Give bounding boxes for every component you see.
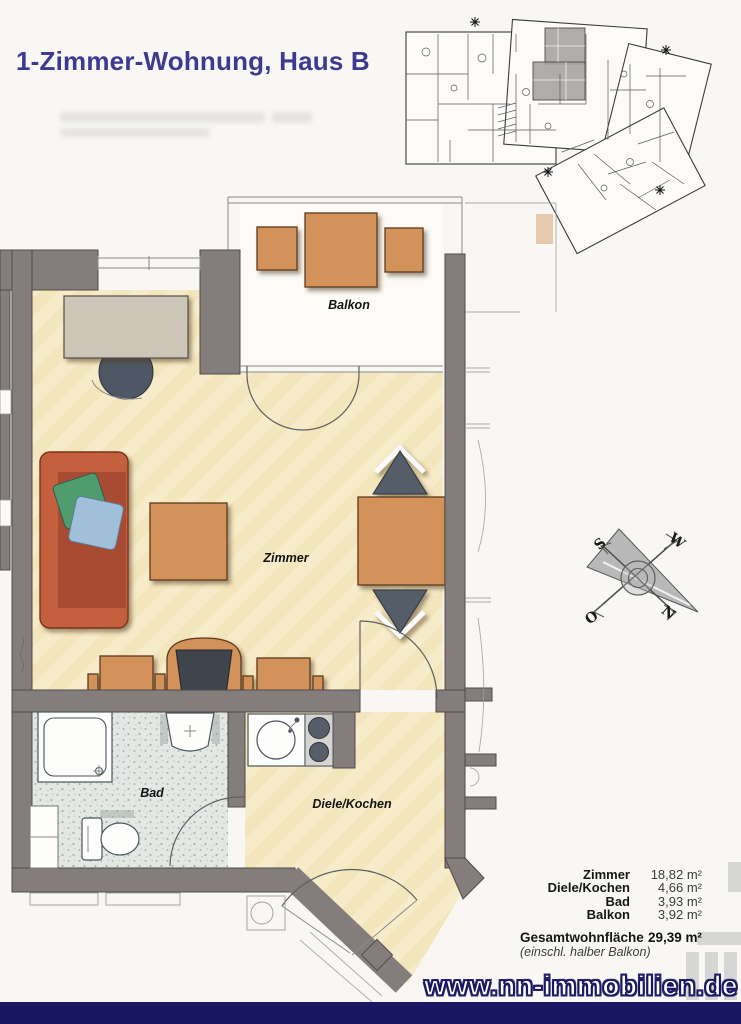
room-label-diele-kochen: Diele/Kochen <box>312 797 392 811</box>
area-label: Zimmer <box>583 868 630 881</box>
balcony-table <box>305 213 377 287</box>
compass-east: O <box>582 608 601 628</box>
compass-west: W <box>665 529 688 552</box>
area-value: 18,82 m² <box>630 868 702 881</box>
area-row: Zimmer 18,82 m² <box>520 868 702 881</box>
area-total-row: Gesamtwohnfläche 29,39 m² <box>520 931 702 944</box>
total-value: 29,39 m² <box>644 931 702 944</box>
armchair <box>167 638 241 697</box>
area-row: Bad 3,93 m² <box>520 895 702 908</box>
dining-table <box>358 497 445 585</box>
total-label: Gesamtwohnfläche <box>520 931 644 944</box>
website-url: www.nn-immobilien.de <box>290 970 738 1002</box>
compass-north: N <box>658 603 678 624</box>
kitchen-sink <box>257 721 295 759</box>
area-value: 4,66 m² <box>630 881 702 894</box>
coffee-table <box>150 503 227 580</box>
area-row: Balkon 3,92 m² <box>520 908 702 921</box>
shower <box>38 712 112 782</box>
compass-rose: S W O N <box>582 529 698 628</box>
brochure-page: 1-Zimmer-Wohnung, Haus B <box>0 0 741 1024</box>
room-label-bad: Bad <box>140 786 164 800</box>
balcony-chair-right <box>385 228 423 272</box>
room-label-zimmer: Zimmer <box>262 551 309 565</box>
pillow-blue <box>68 496 125 551</box>
kitchen-counter <box>248 714 333 766</box>
desk <box>64 296 188 358</box>
toilet <box>82 810 139 860</box>
area-label: Balkon <box>587 908 630 921</box>
area-value: 3,92 m² <box>630 908 702 921</box>
area-label: Diele/Kochen <box>548 881 630 894</box>
area-note: (einschl. halber Balkon) <box>520 945 642 959</box>
neighbor-balcony-lines <box>465 203 556 312</box>
area-row: Diele/Kochen 4,66 m² <box>520 881 702 894</box>
footer-bar <box>0 1002 741 1024</box>
room-label-balkon: Balkon <box>328 298 370 312</box>
area-value: 3,93 m² <box>630 895 702 908</box>
sofa <box>40 452 128 628</box>
area-label: Bad <box>605 895 630 908</box>
building-overview-plan <box>406 17 711 254</box>
stove-burner <box>310 743 329 762</box>
balcony-chair-left <box>257 227 297 270</box>
area-table: Zimmer 18,82 m² Diele/Kochen 4,66 m² Bad… <box>520 868 702 959</box>
stove-burner <box>309 718 330 739</box>
side-chair <box>100 656 153 694</box>
